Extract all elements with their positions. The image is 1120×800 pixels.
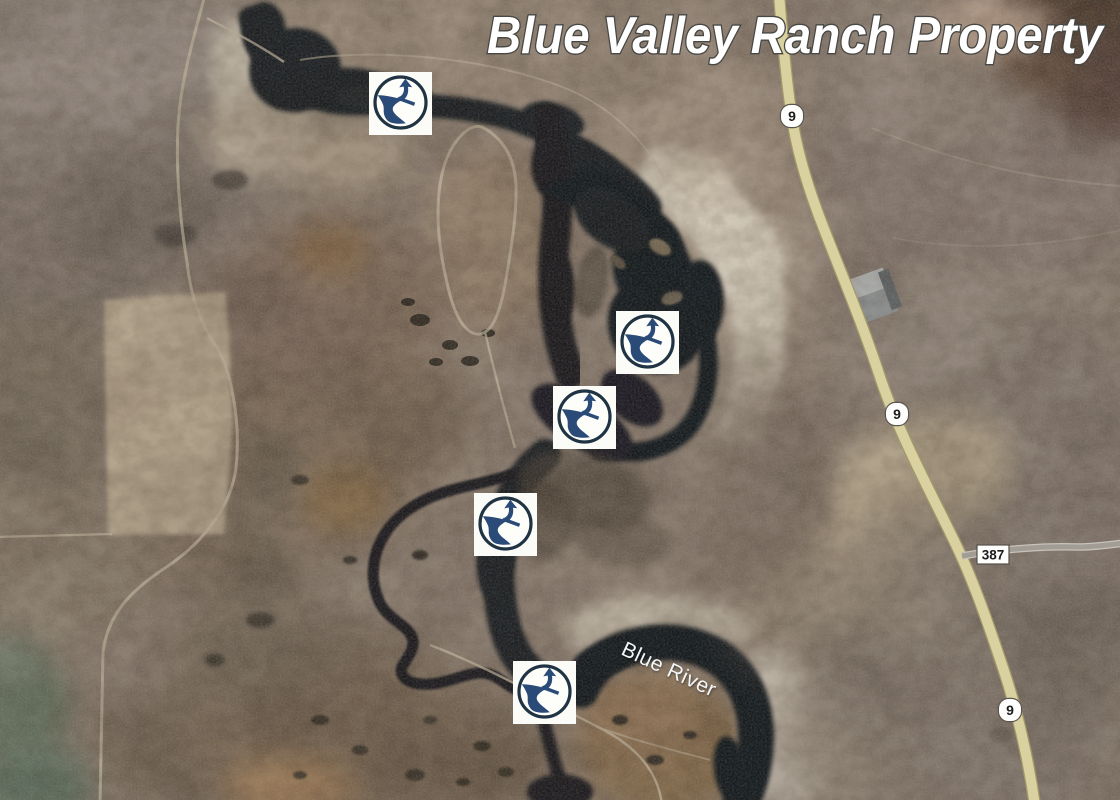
svg-text:Blue Valley Ranch Property: Blue Valley Ranch Property: [487, 7, 1106, 65]
svg-text:387: 387: [982, 548, 1005, 563]
